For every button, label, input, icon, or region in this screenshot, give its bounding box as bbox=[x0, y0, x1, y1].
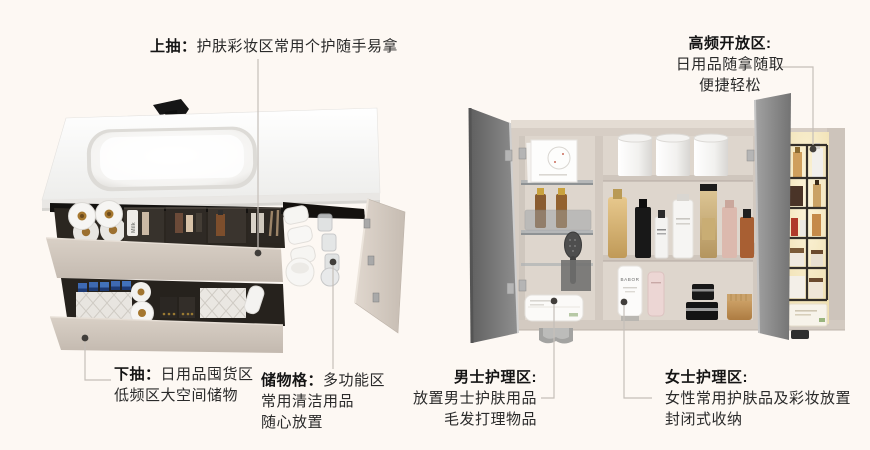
callout-line: 放置男士护肤用品 bbox=[377, 388, 537, 409]
callout-lower-drawer: 下抽：日用品囤货区 低频区大空间储物 bbox=[114, 364, 254, 406]
callout-line: 低频区大空间储物 bbox=[114, 385, 254, 406]
hanging-tissue bbox=[539, 328, 573, 344]
callout-line: 随心放置 bbox=[261, 412, 385, 433]
milk-bottle-label: Milk bbox=[131, 221, 137, 233]
callout-upper-drawer: 上抽：护肤彩妆区常用个护随手易拿 bbox=[150, 36, 398, 57]
left-mirror-door bbox=[470, 108, 518, 343]
callout-womens-zone: 女士护理区: 女性常用护肤品及彩妆放置 封闭式收纳 bbox=[665, 367, 851, 430]
stored-cards bbox=[526, 140, 577, 183]
callout-mens-zone: 男士护理区: 放置男士护肤用品 毛发打理物品 bbox=[377, 367, 537, 430]
callout-title: 上抽： bbox=[150, 38, 197, 55]
infographic-canvas: Milk bbox=[0, 0, 870, 450]
babor-tube-label: BABOR bbox=[620, 277, 639, 282]
callout-line: 封闭式收纳 bbox=[665, 409, 851, 430]
callout-body: 多功能区 bbox=[323, 372, 385, 389]
callout-title: 高频开放区: bbox=[689, 35, 772, 52]
open-shelf-tower bbox=[785, 132, 829, 326]
callout-body: 护肤彩妆区常用个护随手易拿 bbox=[197, 38, 399, 55]
callout-title: 男士护理区: bbox=[454, 369, 537, 386]
callout-storage-grid: 储物格：多功能区 常用清洁用品 随心放置 bbox=[261, 370, 385, 433]
callout-line: 女性常用护肤品及彩妆放置 bbox=[665, 388, 851, 409]
callout-body: 日用品囤货区 bbox=[161, 366, 254, 383]
callout-title: 下抽： bbox=[114, 366, 161, 383]
vanity-render: Milk bbox=[30, 95, 410, 365]
vanity-side-door bbox=[355, 199, 405, 333]
callout-line: 便捷轻松 bbox=[660, 75, 800, 96]
callout-title: 女士护理区: bbox=[665, 369, 748, 386]
callout-line: 常用清洁用品 bbox=[261, 391, 385, 412]
callout-open-zone: 高频开放区: 日用品随拿随取 便捷轻松 bbox=[660, 33, 800, 96]
wet-wipes-box bbox=[525, 295, 583, 321]
white-canisters bbox=[618, 134, 728, 176]
callout-line: 毛发打理物品 bbox=[377, 409, 537, 430]
sink-basin bbox=[86, 126, 257, 192]
mirror-cabinet-render: BABOR bbox=[455, 90, 855, 355]
callout-line: 日用品随拿随取 bbox=[660, 54, 800, 75]
callout-title: 储物格： bbox=[261, 372, 323, 389]
